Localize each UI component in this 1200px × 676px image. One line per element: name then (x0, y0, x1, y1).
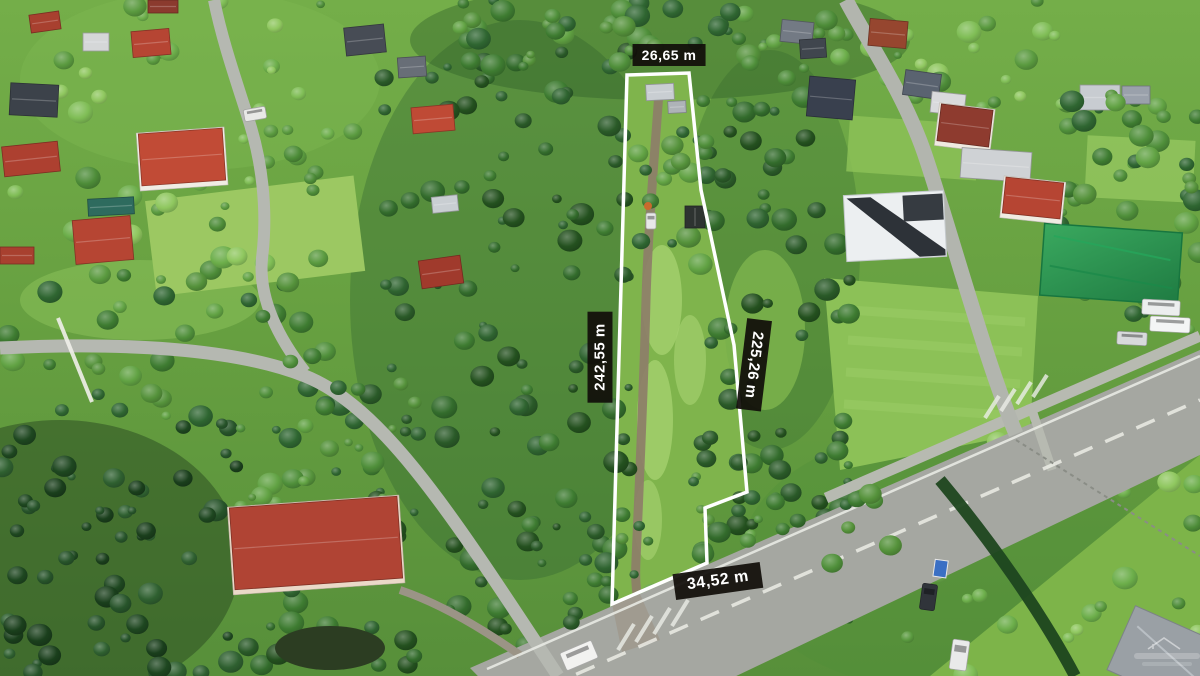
tree (88, 615, 106, 631)
tree (776, 523, 790, 535)
tree (720, 3, 741, 21)
tree (488, 242, 500, 253)
house (806, 76, 855, 120)
tree (1015, 49, 1038, 70)
tree (218, 651, 243, 673)
house (799, 38, 826, 59)
tree (470, 366, 494, 387)
tree (838, 304, 860, 324)
tree (10, 524, 24, 537)
vehicle (1117, 331, 1148, 346)
tree (1129, 125, 1154, 147)
tree (608, 155, 623, 168)
tree (526, 51, 535, 59)
tree (209, 217, 226, 232)
tree (1172, 597, 1186, 609)
tree (688, 477, 699, 487)
tree (553, 523, 561, 530)
tree (279, 428, 302, 448)
tree (497, 346, 520, 366)
tree (58, 551, 74, 565)
vehicle (949, 639, 970, 671)
tree (92, 363, 106, 375)
tree (632, 233, 650, 249)
tree (454, 332, 475, 350)
tree (27, 500, 40, 512)
tree (115, 531, 128, 542)
measurement-label-left: 242,55 m (588, 311, 613, 402)
house (131, 28, 171, 57)
tree (52, 456, 76, 477)
tree (798, 302, 820, 322)
tree (481, 477, 504, 498)
tree (1157, 471, 1181, 492)
tree (1063, 633, 1074, 643)
tree (503, 208, 525, 227)
tree (3, 615, 26, 635)
tree (1113, 169, 1127, 181)
tree (692, 544, 715, 564)
tree (181, 551, 197, 565)
tree (126, 614, 148, 634)
tree (545, 9, 561, 23)
tree (284, 146, 303, 163)
tree (331, 467, 341, 476)
tree (531, 541, 543, 552)
vehicle (1142, 299, 1181, 316)
house (1122, 86, 1150, 104)
dark-garden-patch (275, 626, 385, 670)
tree (91, 90, 107, 104)
tree (661, 136, 683, 156)
house (411, 104, 455, 134)
tree (609, 52, 631, 72)
tree (1156, 110, 1170, 123)
tree (508, 501, 527, 517)
tree (563, 592, 578, 605)
tree (289, 312, 313, 333)
tree (566, 209, 579, 220)
tree (715, 168, 732, 183)
tree (478, 324, 498, 341)
tree (1095, 601, 1107, 612)
tree (79, 67, 92, 79)
tree (769, 460, 792, 480)
tree (633, 521, 645, 531)
tree (176, 420, 191, 434)
house (72, 216, 134, 265)
modern-white-house (843, 190, 946, 261)
tree (676, 126, 689, 138)
tree (754, 515, 763, 523)
tree (128, 507, 137, 515)
tree (37, 570, 53, 584)
tree (731, 504, 746, 517)
tree (879, 535, 902, 555)
tree (238, 638, 259, 656)
tree (401, 415, 412, 424)
tree (1179, 158, 1194, 171)
tree (186, 272, 207, 291)
road-sign (933, 559, 948, 578)
tree (546, 23, 566, 40)
tree (298, 476, 309, 486)
tree (43, 359, 56, 370)
tree (248, 494, 256, 501)
tree (400, 427, 411, 437)
tree (156, 275, 166, 284)
tree (826, 441, 848, 460)
tree (830, 49, 850, 66)
tree (394, 378, 409, 391)
tree (7, 185, 23, 199)
tree (814, 278, 840, 301)
tree (821, 554, 843, 573)
tree (282, 125, 293, 135)
tree (1001, 75, 1012, 84)
tree (1073, 184, 1097, 205)
tree (518, 62, 528, 71)
tree (82, 522, 92, 531)
tree (267, 18, 283, 32)
tree (38, 645, 61, 665)
tree (406, 649, 422, 663)
tree (220, 449, 231, 459)
measurement-value-bottom: 34,52 m (686, 568, 750, 593)
tree (522, 517, 539, 532)
tree (968, 43, 980, 53)
tree (375, 69, 394, 86)
tree (1092, 148, 1112, 166)
tree (308, 250, 328, 268)
tree (44, 478, 66, 497)
tree (1174, 212, 1199, 234)
tree (316, 1, 325, 9)
tree (894, 52, 902, 59)
tree (1014, 91, 1026, 102)
tree (355, 444, 364, 452)
tree (901, 631, 914, 643)
tree (741, 293, 764, 313)
tree (490, 427, 501, 436)
tree (587, 524, 605, 540)
tree (555, 488, 577, 508)
tree (563, 615, 580, 630)
tree (136, 522, 156, 539)
tree (758, 43, 767, 51)
tree (117, 269, 131, 282)
tree (552, 195, 562, 204)
tree (120, 633, 130, 642)
tree (537, 559, 546, 567)
tree (643, 537, 653, 546)
tree (555, 47, 568, 58)
tree (596, 221, 613, 236)
tree (702, 431, 718, 445)
tree (161, 412, 171, 420)
vehicle (1150, 316, 1191, 333)
tree (241, 293, 257, 307)
tree (89, 265, 111, 284)
tree (762, 299, 773, 308)
tree (277, 273, 299, 293)
tree (726, 97, 737, 107)
vehicle (919, 583, 937, 611)
tree (155, 193, 178, 213)
tree (815, 452, 828, 463)
tree (119, 366, 142, 386)
tree (567, 412, 591, 433)
house (148, 0, 178, 13)
tree (778, 70, 796, 86)
tree (766, 494, 785, 511)
tree (343, 123, 362, 140)
tree (1185, 181, 1199, 193)
tree (671, 153, 691, 170)
house (9, 83, 59, 117)
tree (498, 152, 509, 162)
tree (667, 239, 677, 248)
tree (859, 484, 882, 504)
tree (748, 430, 761, 441)
tree (394, 630, 417, 650)
tree (841, 521, 855, 533)
tree (740, 131, 762, 150)
tree (753, 102, 770, 117)
tree (230, 461, 243, 473)
measurement-value-top: 26,65 m (642, 47, 697, 63)
tree (408, 397, 422, 409)
tree (361, 452, 385, 473)
tree (844, 461, 853, 469)
tree (95, 506, 104, 514)
tree (1112, 567, 1138, 590)
tree (764, 148, 786, 167)
measurement-label-top: 26,65 m (633, 44, 706, 66)
tree (443, 63, 452, 71)
tree (227, 247, 248, 265)
house (1000, 176, 1066, 224)
tree (696, 95, 710, 107)
tree (27, 624, 52, 646)
tree (815, 10, 838, 30)
tree (7, 566, 27, 584)
tree (37, 281, 62, 303)
tree (13, 425, 36, 445)
tree (173, 470, 192, 487)
tree (1049, 31, 1060, 41)
tree (796, 330, 809, 341)
tree (799, 64, 809, 73)
vehicle (646, 213, 656, 229)
tree (708, 18, 728, 36)
tree (264, 125, 279, 138)
measurement-value-right: 225,26 m (741, 331, 766, 400)
tree (320, 440, 339, 457)
tree (552, 88, 571, 104)
tree (395, 303, 415, 321)
house (668, 101, 687, 114)
tree (915, 59, 928, 70)
tree (223, 632, 233, 641)
tree (380, 280, 392, 290)
tree (330, 380, 347, 395)
tree (321, 128, 335, 140)
tree (303, 348, 321, 364)
tree (315, 399, 334, 416)
tree (972, 589, 987, 603)
house (29, 11, 61, 33)
green-roof-hall (1040, 223, 1183, 304)
house (344, 24, 387, 56)
tree (110, 594, 132, 613)
tree (272, 426, 281, 434)
tree (625, 384, 633, 391)
tree (616, 533, 629, 544)
tree (557, 230, 582, 252)
tree (103, 468, 125, 487)
tree (387, 364, 397, 373)
tree (378, 104, 391, 115)
house (868, 18, 908, 48)
house (88, 197, 135, 216)
tree (515, 113, 532, 128)
tree (539, 433, 560, 451)
tree (453, 21, 468, 34)
house (431, 195, 459, 214)
tree (662, 0, 683, 18)
house (227, 495, 405, 595)
tree (1124, 306, 1143, 322)
tree (617, 433, 630, 445)
tree (807, 202, 825, 218)
tree (4, 649, 16, 659)
tree (511, 264, 520, 272)
tree (521, 385, 533, 396)
tree (307, 185, 320, 196)
tree (639, 165, 652, 176)
tree (612, 16, 635, 37)
tree (291, 87, 306, 100)
tree (68, 101, 93, 123)
tree (568, 384, 578, 393)
tree (96, 553, 110, 565)
tree (175, 325, 195, 342)
tree (401, 192, 420, 209)
tree (475, 75, 490, 88)
tree (298, 419, 314, 433)
tree (813, 28, 825, 39)
tree (75, 167, 100, 189)
tree (1071, 624, 1084, 635)
tree (769, 107, 779, 116)
tree (138, 583, 163, 605)
tree (740, 534, 756, 548)
tree (425, 72, 438, 84)
tree (379, 200, 398, 217)
tree (283, 355, 299, 369)
tree (499, 623, 512, 634)
tree (199, 507, 216, 522)
tree (1, 445, 17, 459)
tree (697, 450, 717, 467)
tree (563, 265, 580, 280)
tree (410, 509, 419, 517)
tree (482, 189, 504, 208)
house (934, 103, 995, 153)
tree (747, 209, 770, 229)
tree (93, 642, 110, 657)
tree (216, 419, 228, 429)
tree (1116, 201, 1138, 221)
tree (466, 28, 491, 50)
tree (834, 413, 853, 429)
tree (538, 142, 553, 155)
screenshot-root: 26,65 m 242,55 m 225,26 m 34,52 m (0, 0, 1200, 676)
house (418, 255, 463, 289)
tree (1072, 110, 1097, 132)
tree (304, 173, 317, 184)
house (685, 206, 705, 228)
tree (484, 170, 497, 181)
tree (579, 512, 591, 523)
tree (741, 55, 759, 71)
tree (480, 54, 505, 76)
tree (141, 384, 163, 403)
tree (256, 310, 271, 323)
house (83, 33, 109, 51)
tree (598, 116, 622, 137)
tree (732, 33, 746, 45)
tree (1136, 147, 1160, 169)
house (136, 127, 228, 191)
tree (599, 22, 613, 34)
tree (775, 428, 786, 438)
tree (243, 272, 254, 282)
house (2, 141, 61, 177)
tree (629, 570, 638, 578)
tree (490, 0, 515, 22)
tree (92, 389, 105, 400)
tree (688, 253, 713, 275)
measurement-value-left: 242,55 m (592, 323, 609, 390)
tree (758, 189, 770, 200)
tree (509, 398, 529, 415)
tree (1060, 91, 1084, 113)
tree (259, 386, 273, 398)
orange-object (644, 202, 652, 210)
tree (267, 66, 276, 74)
tree (771, 208, 797, 231)
tree (97, 310, 119, 329)
tree (724, 126, 737, 138)
tree (496, 91, 508, 101)
tree (221, 202, 230, 210)
tree (957, 21, 982, 43)
tree (1106, 94, 1126, 112)
tree (988, 96, 1001, 108)
house (0, 247, 34, 264)
tree (351, 383, 366, 396)
tree (704, 337, 718, 349)
tree (843, 275, 855, 286)
tree (962, 594, 973, 604)
house (960, 148, 1032, 183)
tree (206, 303, 223, 318)
tree (676, 226, 701, 248)
tree (244, 176, 254, 185)
tree (790, 514, 806, 528)
